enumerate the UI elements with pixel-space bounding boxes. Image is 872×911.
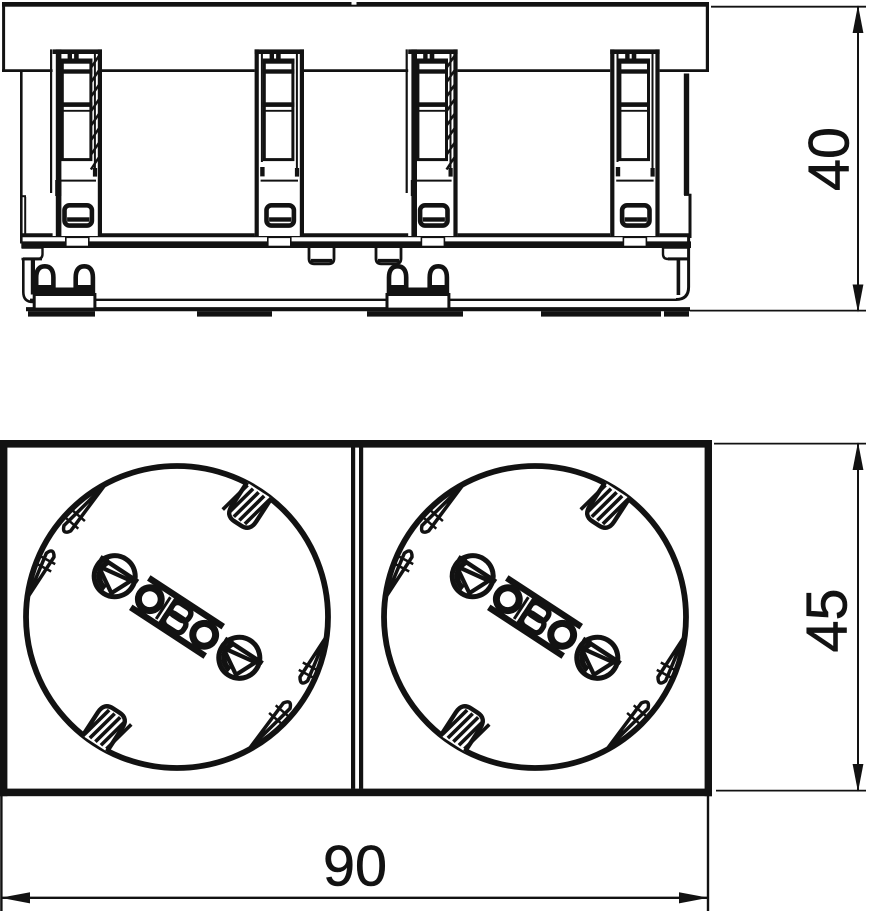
svg-text:90: 90 — [323, 835, 387, 899]
svg-text:40: 40 — [798, 127, 862, 191]
svg-text:45: 45 — [796, 589, 860, 653]
